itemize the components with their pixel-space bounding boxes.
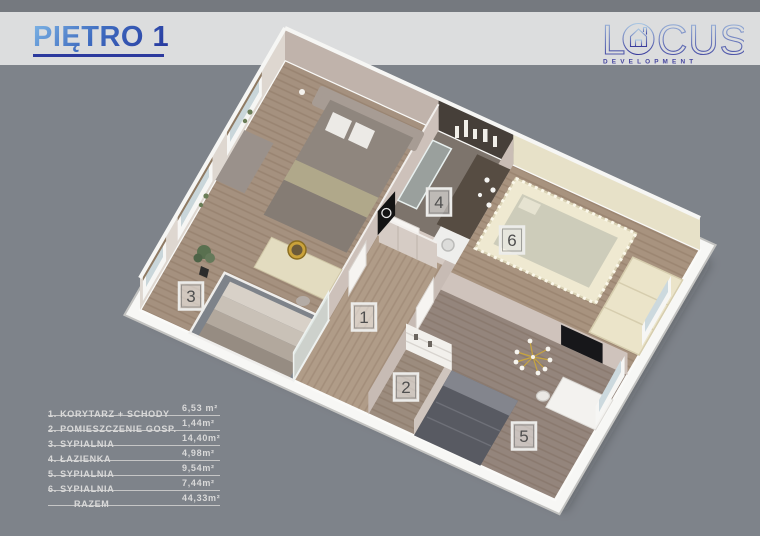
room-badge-2: 2 — [394, 374, 418, 401]
logo-subtitle: D E V E L O P M E N T — [603, 59, 694, 66]
legend-row-6: 6. SYPIALNIA 7,44m² — [48, 476, 220, 491]
page-title: PIĘTRO 1 — [33, 21, 169, 54]
logo-letter-l: L — [602, 16, 625, 63]
room-number: 5 — [519, 427, 528, 446]
room-badge-3: 3 — [179, 283, 203, 310]
page: 1 2 3 4 5 — [0, 0, 760, 536]
room-number: 4 — [434, 193, 443, 212]
stool — [296, 296, 310, 306]
legend-total-row: RAZEM 44,33m² — [48, 491, 220, 506]
room-number: 3 — [186, 287, 195, 306]
area-legend: 1. KORYTARZ + SCHODY 6,53 m² 2. POMIESZC… — [48, 401, 224, 506]
washer-door — [442, 239, 454, 251]
legend-total-area: 44,33m² — [182, 494, 220, 503]
legend-room-area: 1,44m² — [182, 419, 215, 428]
legend-room-area: 14,40m² — [182, 434, 220, 443]
room-badge-6: 6 — [500, 227, 524, 254]
legend-row-1: 1. KORYTARZ + SCHODY 6,53 m² — [48, 401, 220, 416]
legend-room-area: 4,98m² — [182, 449, 215, 458]
locus-logo: L CUS D E V E L O P M E N T — [594, 12, 744, 66]
pendant-lamp — [299, 89, 305, 95]
legend-room-area: 9,54m² — [182, 464, 215, 473]
legend-total-label: RAZEM — [48, 499, 110, 509]
legend-row-3: 3. SYPIALNIA 14,40m² — [48, 431, 220, 446]
legend-row-2: 2. POMIESZCZENIE GOSP. 1,44m² — [48, 416, 220, 431]
room-badge-4: 4 — [427, 189, 451, 216]
legend-row-4: 4. ŁAZIENKA 4,98m² — [48, 446, 220, 461]
house-icon — [631, 28, 647, 47]
desk-chair — [537, 391, 550, 401]
logo-letter-o — [623, 24, 654, 55]
legend-room-area: 6,53 m² — [182, 404, 218, 413]
title-underline — [33, 54, 164, 57]
room-number: 2 — [401, 378, 410, 397]
room-number: 6 — [507, 231, 516, 250]
room-badge-5: 5 — [512, 423, 536, 450]
legend-row-5: 5. SYPIALNIA 9,54m² — [48, 461, 220, 476]
logo-letters-cus: CUS — [657, 16, 744, 63]
room-badge-1: 1 — [352, 304, 376, 331]
room-number: 1 — [359, 308, 368, 327]
legend-room-area: 7,44m² — [182, 479, 215, 488]
